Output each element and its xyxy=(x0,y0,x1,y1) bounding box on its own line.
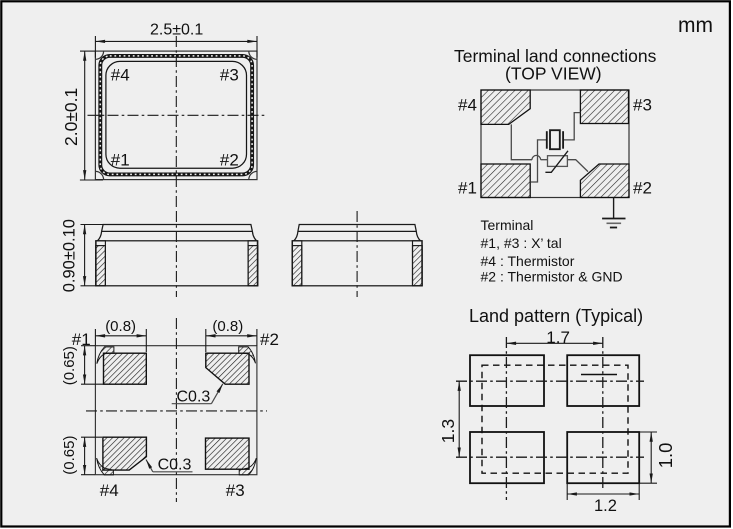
svg-text:#3: #3 xyxy=(220,65,239,84)
svg-text:2.0±0.1: 2.0±0.1 xyxy=(61,88,81,146)
svg-text:mm: mm xyxy=(678,14,713,37)
svg-text:#1, #3 : X’ tal: #1, #3 : X’ tal xyxy=(481,235,562,251)
svg-text:#2: #2 xyxy=(260,330,279,349)
svg-text:Land pattern (Typical): Land pattern (Typical) xyxy=(469,306,643,326)
svg-text:Terminal: Terminal xyxy=(481,217,534,233)
svg-text:#4 : Thermistor: #4 : Thermistor xyxy=(481,253,575,269)
svg-text:#4: #4 xyxy=(111,65,130,84)
svg-text:(0.65): (0.65) xyxy=(61,436,78,475)
svg-text:0.90±0.10: 0.90±0.10 xyxy=(61,219,79,292)
svg-text:(0.65): (0.65) xyxy=(61,346,78,385)
svg-text:#3: #3 xyxy=(226,481,245,500)
svg-text:(0.8): (0.8) xyxy=(212,318,243,335)
svg-text:#2 : Thermistor & GND: #2 : Thermistor & GND xyxy=(481,269,623,285)
svg-text:#2: #2 xyxy=(633,179,652,198)
svg-text:#4: #4 xyxy=(458,96,477,115)
svg-text:1.2: 1.2 xyxy=(594,497,617,515)
svg-text:(0.8): (0.8) xyxy=(105,318,136,335)
svg-text:C0.3: C0.3 xyxy=(158,456,192,473)
svg-text:2.5±0.1: 2.5±0.1 xyxy=(150,21,203,38)
svg-text:1.7: 1.7 xyxy=(546,328,570,347)
svg-text:#1: #1 xyxy=(111,151,130,170)
svg-text:#1: #1 xyxy=(458,179,477,198)
svg-text:C0.3: C0.3 xyxy=(177,388,211,405)
svg-text:#4: #4 xyxy=(100,481,119,500)
svg-text:#3: #3 xyxy=(633,96,652,115)
svg-text:1.3: 1.3 xyxy=(438,419,458,443)
svg-text:1.0: 1.0 xyxy=(655,443,676,469)
svg-text:#2: #2 xyxy=(220,151,239,170)
svg-text:(TOP VIEW): (TOP VIEW) xyxy=(505,63,602,83)
